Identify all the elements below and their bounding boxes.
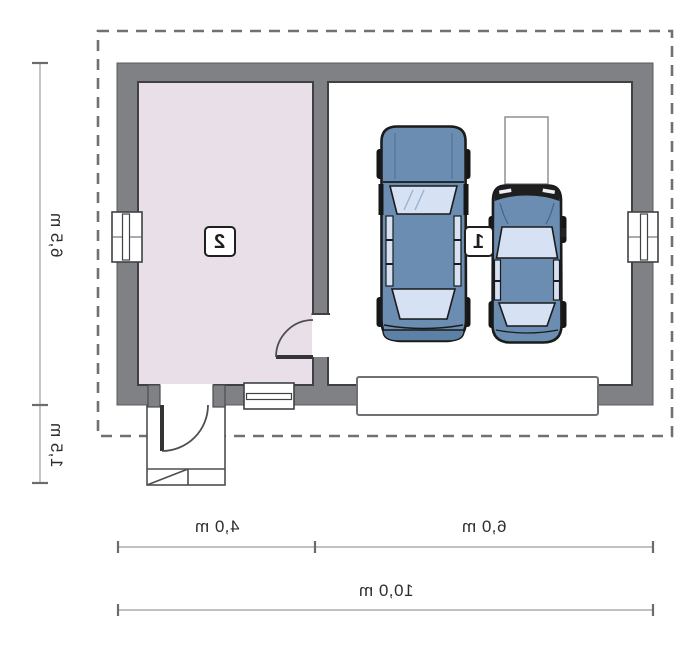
suv-side-window-left [386,216,393,286]
car-sedan-icon [488,186,567,343]
door-jamb-right [213,385,225,407]
dim-width-garage: 6,0 m [461,517,506,537]
window-bottom [244,383,294,409]
dim-depth-main: 6,5 m [46,212,66,257]
room-1-number: 1 [473,232,484,252]
dim-width-room2: 4,0 m [194,517,239,537]
dim-width-total: 10,0 m [359,581,414,601]
room-2-number: 2 [214,232,225,252]
floor-plan-canvas: 2 1 6,5 m 1,5 m 4,0 m 6,0 m 10,0 m [0,0,700,654]
sedan-rear-window [499,303,555,326]
door-jamb-left [148,385,160,407]
suv-windshield [392,289,455,319]
storage-unit [505,117,548,184]
garage-door [357,377,598,415]
suv-front-bumper [383,330,464,341]
room-2-label-box: 2 [204,226,236,257]
exterior-door-opening [160,384,213,407]
sedan-mirror-right [561,228,567,237]
window-right [628,212,658,262]
suv-side-window-right [454,216,461,286]
sedan-windshield [497,227,558,258]
dim-depth-porch: 1,5 m [46,422,66,467]
interior-door-opening [312,314,331,357]
window-left [112,212,142,262]
room-1-label-box: 1 [464,226,494,257]
car-suv-icon [377,127,471,342]
floor-plan-drawing [0,0,700,654]
